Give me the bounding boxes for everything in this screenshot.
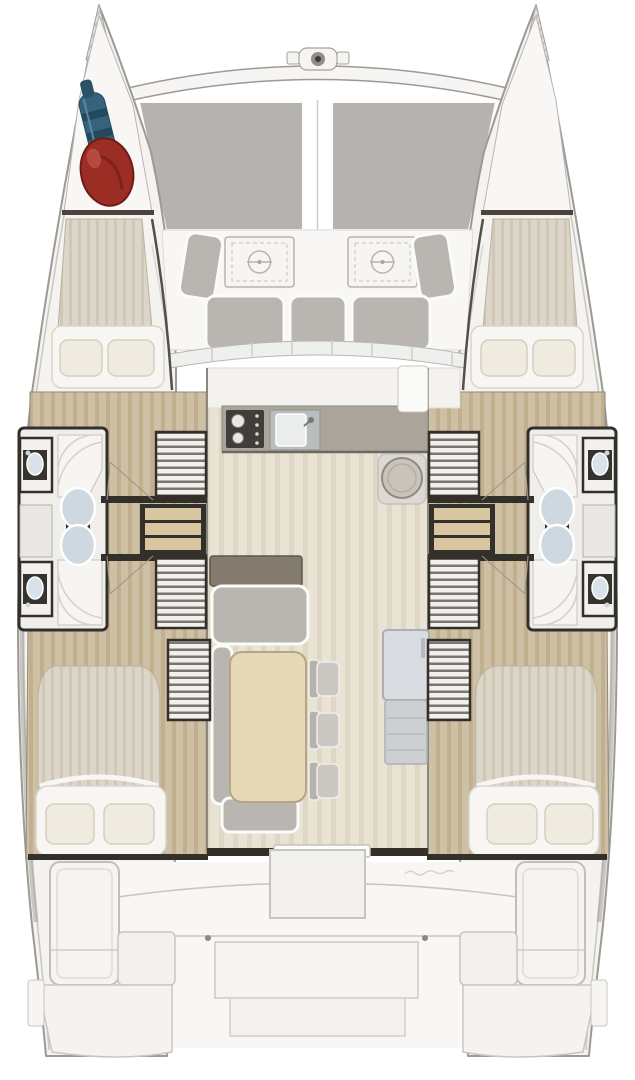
vanity-shelf (20, 505, 52, 557)
salon-aft-bulkhead-port (207, 848, 274, 856)
galley-end-column (398, 366, 428, 412)
aft-cabin-bulkhead (28, 854, 208, 860)
dinette-chairs (309, 660, 339, 800)
sofa-back-cabinet (210, 556, 302, 586)
transom-step-box-starboard (460, 932, 517, 985)
deck-fitting-starboard (422, 935, 428, 941)
transom-platform-port (38, 985, 172, 1057)
aft-cabin-bulkhead (427, 854, 607, 860)
port-aft-companionway-steps (168, 640, 210, 720)
starboard-louvered-locker-forward (429, 432, 479, 496)
trampoline-panel-port (139, 102, 303, 230)
forward-crossbeam (128, 66, 507, 101)
deck-hatch-starboard (348, 237, 417, 287)
port-louvered-locker-forward (156, 432, 206, 496)
faucet (605, 603, 610, 608)
foredeck (128, 48, 507, 230)
washbasin-unit-forward (20, 438, 52, 492)
sink-basin (276, 414, 306, 446)
mattress (58, 219, 152, 328)
washbasin-unit-aft (20, 562, 52, 616)
forestay-pin (315, 56, 321, 62)
mattress (38, 666, 160, 788)
pillow (46, 804, 94, 844)
swim-platform-upper (215, 942, 418, 998)
pillow (108, 340, 154, 376)
boarding-step-starboard (591, 980, 607, 1026)
deck-hatch-port (225, 237, 294, 287)
salon-aft-bulkhead-starboard (370, 848, 428, 856)
starboard-louvered-locker-mid (429, 558, 479, 628)
pillow (533, 340, 575, 376)
port-locker-bulkhead (62, 210, 154, 215)
pillow (481, 340, 527, 376)
deck-fitting-port (205, 935, 211, 941)
starboard-stair-treads (429, 504, 495, 554)
refrigerator-unit (383, 630, 429, 764)
chair-1 (309, 660, 339, 698)
sofa-top-bench (212, 586, 308, 644)
pillow (487, 804, 537, 844)
aft-bench-port (50, 862, 119, 985)
forestay-side-tab-port (287, 52, 299, 64)
starboard-locker-bulkhead (481, 210, 573, 215)
toilet-forward (540, 488, 574, 528)
pillow (545, 804, 593, 844)
mattress (475, 666, 597, 788)
chair-2 (309, 711, 339, 749)
aft-deck (28, 850, 607, 1057)
trampoline-panel-starboard (332, 102, 496, 230)
swim-platform-lower (230, 998, 405, 1036)
catamaran-floorplan (0, 0, 635, 1080)
stove-burner-2 (233, 433, 244, 444)
port-louvered-locker-mid (156, 558, 206, 628)
dinette-table (230, 652, 306, 802)
transom-step-box-port (118, 932, 175, 985)
port-stair-treads (140, 504, 206, 554)
chair-3 (309, 762, 339, 800)
stove-burner-1 (232, 415, 245, 428)
pillow (60, 340, 102, 376)
floorplan-canvas (0, 0, 635, 1080)
aft-bench-starboard (516, 862, 585, 985)
starboard-aft-companionway-steps (428, 640, 470, 720)
toilet-aft (61, 525, 95, 565)
washbasin-unit-aft (583, 562, 615, 616)
forestay-side-tab-starboard (337, 52, 349, 64)
pillow (104, 804, 154, 844)
pouf-seat (378, 454, 426, 504)
toilet-forward (61, 488, 95, 528)
transom-platform-starboard (463, 985, 597, 1057)
toilet-aft (540, 525, 574, 565)
faucet (26, 603, 31, 608)
faucet (605, 451, 610, 456)
cockpit-center-module (270, 850, 365, 918)
lower-cabinet (385, 700, 427, 764)
salon (170, 340, 465, 857)
washbasin-unit-forward (583, 438, 615, 492)
boarding-step-port (28, 980, 44, 1026)
sofa-bottom-bench (222, 798, 298, 832)
mattress (483, 219, 577, 328)
forward-cockpit (152, 230, 483, 350)
faucet (26, 451, 31, 456)
vanity-shelf (583, 505, 615, 557)
fridge-handle (421, 638, 425, 658)
